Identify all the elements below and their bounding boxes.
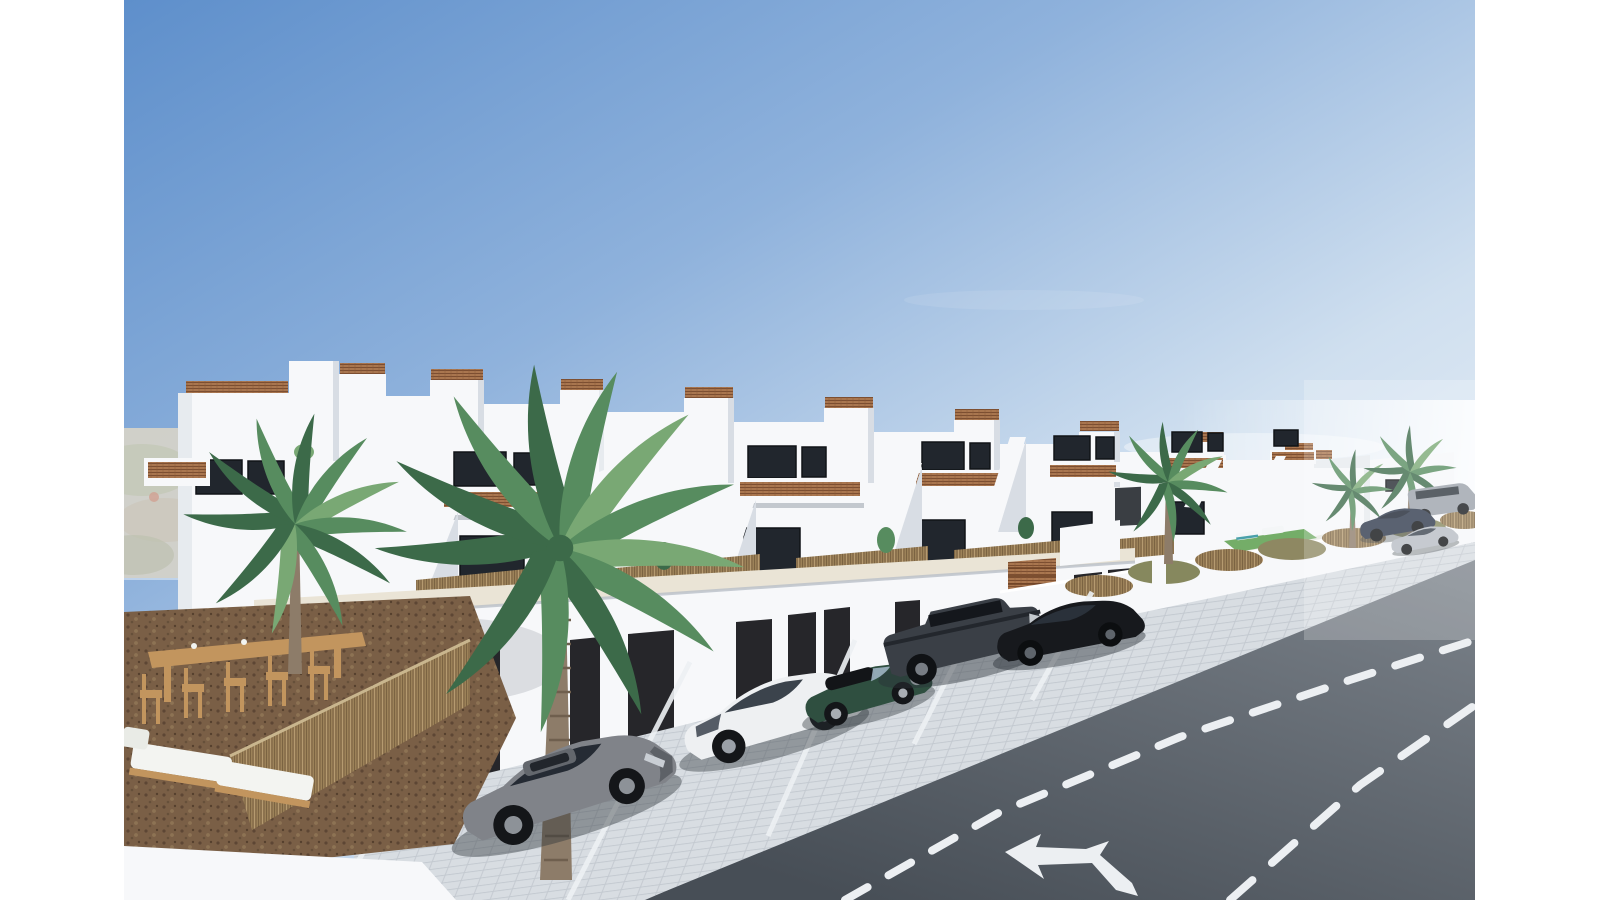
scene-svg	[124, 0, 1475, 900]
haze-overlay	[1304, 380, 1475, 640]
rendered-photo	[124, 0, 1475, 900]
render-canvas	[0, 0, 1600, 900]
pool-gate-structure	[1060, 520, 1120, 566]
wall-pillar	[1152, 560, 1166, 616]
